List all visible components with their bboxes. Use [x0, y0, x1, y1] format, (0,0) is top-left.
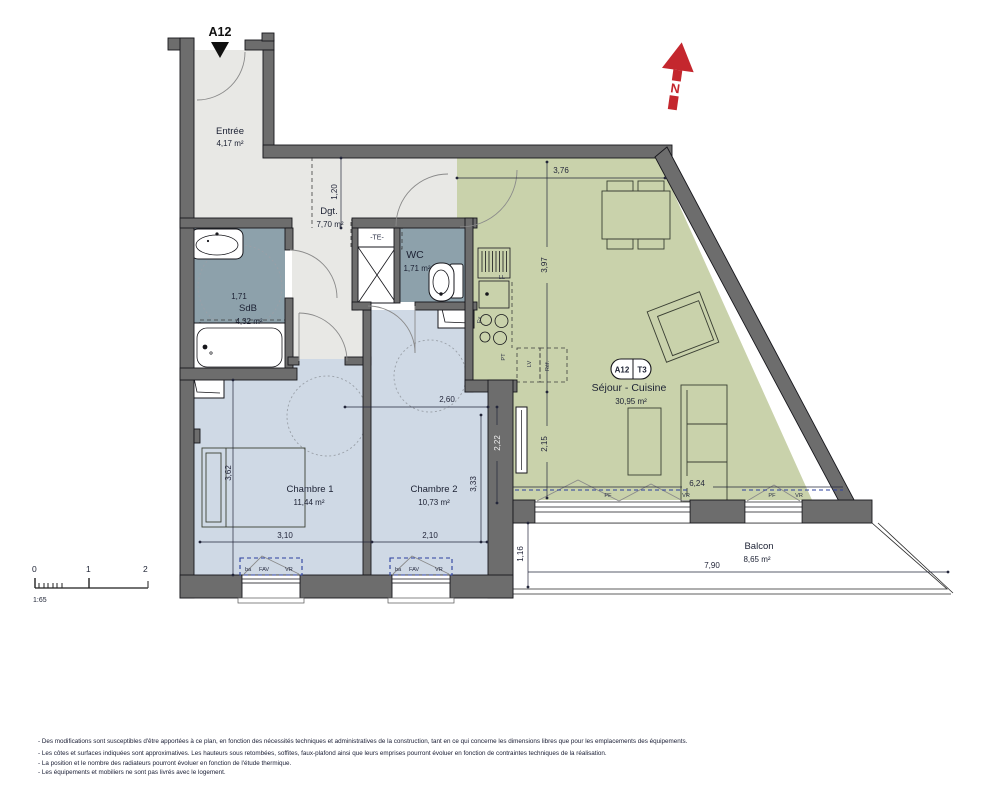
label-te: -TE-: [370, 235, 384, 242]
area-balcon: 8,65 m²: [743, 555, 770, 564]
badge-unit: A12: [615, 366, 630, 375]
floorplan-drawing: LL Ev PT LV Réf. -TE-: [0, 0, 993, 800]
label-balcon: Balcon: [744, 541, 773, 552]
label-vr-4: VR: [795, 493, 803, 499]
dim-sejour-top: 3,76: [553, 166, 569, 175]
label-dgt: Dgt.: [320, 206, 337, 217]
label-ev: Ev: [477, 317, 483, 324]
footer-line-2: - Les côtes et surfaces indiquées sont a…: [38, 750, 607, 757]
dim-dgt-height: 1,20: [330, 184, 339, 200]
label-chambre2: Chambre 2: [411, 484, 458, 495]
label-fav-1: FAV: [259, 567, 269, 573]
area-entree: 4,17 m²: [216, 139, 243, 148]
label-ba-2: ba: [395, 567, 402, 573]
dim-balcon-depth: 1,16: [516, 546, 525, 562]
label-wc: WC: [406, 249, 424, 261]
scale-2: 2: [143, 564, 148, 574]
label-ref: Réf.: [545, 360, 551, 371]
area-chambre1: 11,44 m²: [294, 498, 325, 507]
toilet: [429, 263, 463, 301]
area-sejour: 30,95 m²: [615, 397, 647, 406]
area-dgt: 7,70 m²: [316, 220, 343, 229]
label-fav-2: FAV: [409, 567, 419, 573]
label-pf-2: PF: [768, 493, 776, 499]
dim-sejour-kitchen: 3,97: [540, 257, 549, 273]
dim-ch2-top: 2,60: [439, 395, 455, 404]
footer-notes: - Des modifications sont susceptibles d'…: [38, 738, 688, 776]
radiator-sejour: [516, 407, 527, 473]
label-vr-3: VR: [682, 493, 690, 499]
label-vr-1: VR: [285, 567, 293, 573]
unit-title: A12: [209, 25, 232, 39]
north-arrow-icon: N: [656, 40, 697, 112]
label-pf-1: PF: [604, 493, 612, 499]
floor-balcon: [513, 523, 947, 589]
dim-balcon-width: 7,90: [704, 561, 720, 570]
area-wc: 1,71 m²: [403, 264, 430, 273]
badge-type: T3: [637, 366, 647, 375]
scale-0: 0: [32, 564, 37, 574]
dim-ch2-width: 2,10: [422, 531, 438, 540]
area-chambre2: 10,73 m²: [418, 498, 450, 507]
label-ll: LL: [499, 275, 505, 281]
dim-sdb-width: 1,71: [231, 292, 247, 301]
bathtub: [191, 323, 288, 372]
floor-dgt-corridor: [292, 228, 358, 310]
duct-box: [358, 247, 396, 303]
footer-line-3: - La position et le nombre des radiateur…: [38, 760, 291, 767]
dim-ch1-height: 3,62: [224, 465, 233, 481]
washbasin: [191, 229, 243, 259]
scale-ratio: 1:65: [33, 597, 47, 604]
dim-ch2-height: 3,33: [469, 476, 478, 492]
dim-sejour-lower: 2,15: [540, 436, 549, 452]
unit-badge: A12 T3: [611, 359, 651, 379]
scale-1: 1: [86, 564, 91, 574]
footer-line-1: - Des modifications sont susceptibles d'…: [38, 738, 688, 745]
dim-sejour-bottom: 6,24: [689, 479, 705, 488]
label-chambre1: Chambre 1: [287, 484, 334, 495]
label-entree: Entrée: [216, 126, 244, 137]
dim-ch2-right: 2,22: [493, 435, 502, 451]
label-ba-1: ba: [245, 567, 252, 573]
dim-ch1-width: 3,10: [277, 531, 293, 540]
footer-line-4: - Les équipements et mobiliers ne sont p…: [38, 769, 226, 776]
label-vr-2: VR: [435, 567, 443, 573]
label-lv: LV: [527, 361, 533, 368]
floorplan-page: { "plan": { "unit_title": "A12", "badge"…: [0, 0, 993, 800]
scale-bar: 0 1 2 1:65: [32, 564, 148, 604]
floor-dgt-top: [194, 157, 457, 228]
label-sejour: Séjour - Cuisine: [592, 382, 667, 394]
area-sdb: 4,32 m²: [235, 317, 262, 326]
label-sdb: SdB: [239, 303, 257, 314]
label-pt: PT: [501, 353, 507, 361]
